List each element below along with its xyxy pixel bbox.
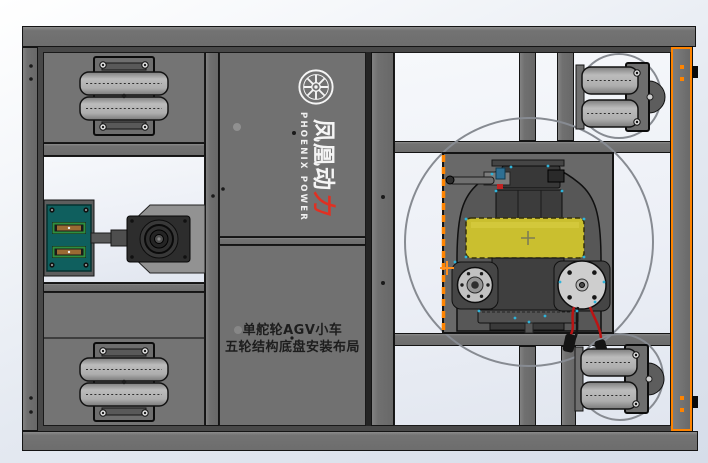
fixed-caster-rear-left[interactable] bbox=[80, 343, 168, 421]
encoder-disc[interactable] bbox=[452, 262, 498, 309]
shaft-coupler[interactable] bbox=[111, 230, 127, 246]
fixed-caster-front-left[interactable] bbox=[80, 57, 168, 135]
caption-line-1: 单舵轮AGV小车 bbox=[219, 322, 366, 339]
side-drive-motor-assembly[interactable] bbox=[91, 205, 205, 273]
drive-shaft[interactable] bbox=[91, 233, 113, 243]
parts-overlay bbox=[0, 0, 708, 463]
brand-name-cn: 凤凰动力 bbox=[311, 119, 334, 215]
caption-line-2: 五轮结构底盘安装布局 bbox=[219, 339, 366, 356]
cad-viewport: 凤凰动力 PHOENIX POWER 单舵轮AGV小车 五轮结构底盘安装布局 bbox=[0, 0, 708, 463]
side-drive-motor[interactable] bbox=[127, 216, 190, 262]
brand-logo: 凤凰动力 PHOENIX POWER bbox=[294, 65, 338, 225]
brand-name-cn-accent: 力 bbox=[310, 191, 336, 215]
right-rail-tab-bottom bbox=[692, 396, 698, 408]
right-rail-tab-top bbox=[692, 66, 698, 78]
drive-motor-body[interactable] bbox=[492, 258, 564, 310]
charging-contact-block[interactable] bbox=[47, 205, 91, 271]
swivel-caster-rear-right[interactable] bbox=[575, 345, 664, 413]
spoked-wheel-icon bbox=[297, 68, 335, 106]
contact-slot-2[interactable] bbox=[52, 246, 86, 258]
brand-logo-text: 凤凰动力 PHOENIX POWER bbox=[298, 112, 334, 222]
contact-slot-1[interactable] bbox=[52, 222, 86, 234]
steering-motor-disc[interactable] bbox=[554, 261, 610, 311]
drive-wheel[interactable] bbox=[466, 218, 584, 258]
glare-smudge-1 bbox=[233, 123, 241, 131]
gearbox-block[interactable] bbox=[496, 190, 562, 220]
right-rail-selection-dots bbox=[680, 65, 684, 412]
layout-caption: 单舵轮AGV小车 五轮结构底盘安装布局 bbox=[219, 322, 366, 356]
charging-contact-assembly[interactable] bbox=[44, 200, 94, 276]
brand-name-en: PHOENIX POWER bbox=[298, 112, 308, 222]
